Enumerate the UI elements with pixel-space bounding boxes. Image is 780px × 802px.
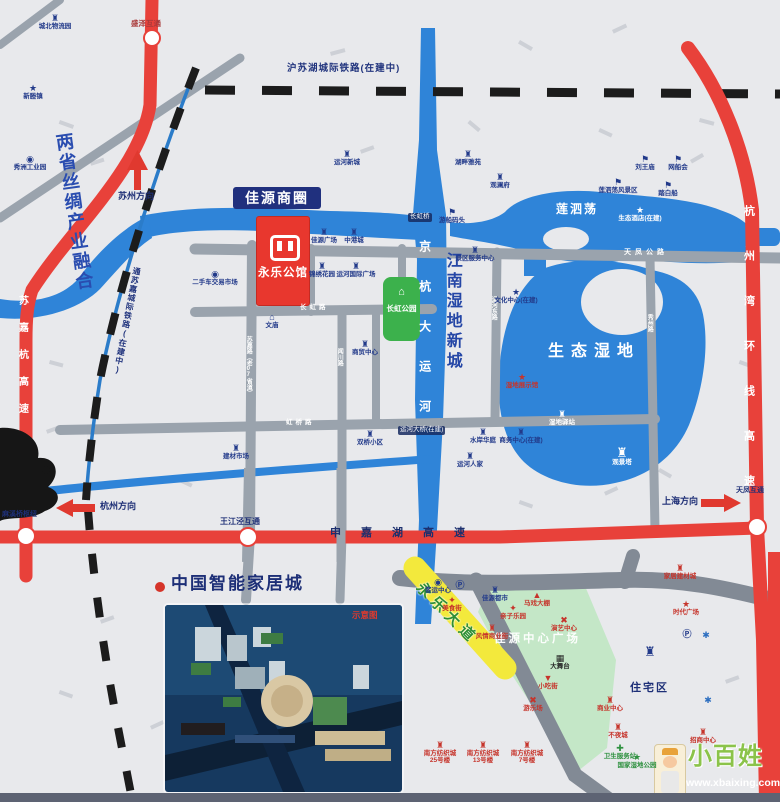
junction-hub: 麻溪桥枢纽 [2,511,37,518]
tower-icon: ♜ [612,645,688,658]
knot-icon: ✱ [670,696,746,705]
poi-buildings: ♜观澜府 [462,173,538,189]
buildings-icon: ♜ [17,14,93,23]
direction-shanghai: 上海方向 [662,497,698,506]
boat-icon: ⚑ [640,155,716,164]
poi-games: ✖演艺中心 [526,616,602,632]
poi-star: ★新塍镇 [0,84,71,100]
plus-icon: ✚ [582,744,658,753]
poi-buildings: ♜商贸中心 [327,340,403,356]
poi-label: 游乐场 [495,705,571,712]
poi-buildings: ♜商业中心 [572,696,648,712]
watermark-brand: 小百姓 [688,744,763,769]
poi-label: 生态酒店(在建) [602,215,678,222]
poi-label: 商务中心(在建) [483,437,559,444]
ink-dot [51,495,57,501]
title-bullet-icon [155,582,165,592]
star-icon: ★ [478,288,554,297]
hangzhou-bay-hwy-label: 杭州湾环线高速 [742,205,754,520]
food-icon: ✦ [475,604,551,613]
inset-tag: 示意图 [352,611,378,620]
tower-icon: ♜ [584,446,660,459]
direction-suzhou: 苏州方向 [118,192,154,201]
poi-buildings: ♜家居建材城 [642,564,718,580]
poi-label: 演艺中心 [526,625,602,632]
poi-label: 大舞台 [522,663,598,670]
poi-label: 秀洲工业园 [0,164,68,171]
star-icon: ★ [602,206,678,215]
poi-buildings: ♜风情商业街 [454,624,530,640]
ink-blot-decoration [0,428,58,521]
buildings-icon: ♜ [437,246,513,255]
poi-label: 不夜城 [580,732,656,739]
poi-buildings: ♜不夜城 [580,723,656,739]
buildings-icon: ♜ [316,228,392,237]
buildings-icon: ♜ [430,150,506,159]
park-block: ⌂ 长虹公园 [383,277,420,341]
poi-star: ★国家湿地公园 [599,753,675,769]
flower-icon: ◉ [177,270,253,279]
junction-wangjiangjing: 王江泾互通 [220,518,260,526]
buildings-icon: ♜ [524,410,600,419]
map-canvas: 沪苏湖城际铁路(在建中) 通苏嘉城际铁路(在建中) 盛泽互通 苏州方向 两省丝绸… [0,0,780,802]
buildings-icon: ♜ [489,741,565,750]
poi-label: 湿地驿站 [524,419,600,426]
poi-buildings: ♜商务中心(在建) [483,428,559,444]
xiuzhou-rd-label: 秀州路 [646,314,652,332]
poi-label: 商业中心 [572,705,648,712]
residential-label: 住宅区 [630,683,669,695]
buildings-icon: ♜ [483,428,559,437]
buildings-icon: ♜ [665,728,741,737]
aerial-inset-image [165,605,402,792]
poi-star: ★湿地展示馆 [484,373,560,389]
cone-icon: ▼ [510,674,586,683]
poi-buildings: ♜景区服务中心 [437,246,513,262]
poi-label: 二手车交易市场 [177,279,253,286]
poi-label: 商贸中心 [327,349,403,356]
poi-label: 运河国际广场 [318,271,394,278]
wetland-city-label: 江南湿地新城 [443,252,460,372]
poi-label: 双桥小区 [332,439,408,446]
poi-knot: ✱ [668,631,744,640]
poi-star: ★文化中心(在建) [478,288,554,304]
buildings-icon: ♜ [198,444,274,453]
poi-star: ★时代广场 [648,600,724,616]
boat-icon: ⚑ [414,208,490,217]
poi-label: 文化中心(在建) [478,297,554,304]
poi-label: 观澜府 [462,182,538,189]
hongqiao-rd-label: 虹桥路 [286,420,315,427]
poi-label: 南方纺织城 7号楼 [489,750,565,764]
poi-label: 建材市场 [198,453,274,460]
direction-hangzhou: 杭州方向 [100,502,136,511]
poi-buildings: ♜运河人家 [432,452,508,468]
poi-buildings: ♜运河国际广场 [318,262,394,278]
flower-icon: ◉ [0,155,68,164]
poi-label: 国家湿地公园 [599,762,675,769]
poi-tower: ♜观景塔 [584,446,660,466]
poi-cone: ▼小吃街 [510,674,586,690]
boat-icon: ⚑ [630,181,706,190]
poi-stage: ▦大舞台 [522,654,598,670]
poi-label: 城北物流园 [17,23,93,30]
poi-label: 时代广场 [648,609,724,616]
star-icon: ★ [599,753,675,762]
tent-icon: ▲ [499,591,575,600]
poi-label: 运河新城 [309,159,385,166]
buildings-icon: ♜ [462,173,538,182]
poi-label: 风情商业街 [454,633,530,640]
buildings-icon: ♜ [454,624,530,633]
poi-buildings: ♜湿地驿站 [524,410,600,426]
poi-label: 湖畔雅苑 [430,159,506,166]
buildings-icon: ♜ [642,564,718,573]
poi-knot: ✱ [670,696,746,705]
poi-boat: ⚑游船码头 [414,208,490,224]
buildings-icon: ♜ [572,696,648,705]
sujiahang-hwy-label: 苏嘉杭高速 [16,295,27,430]
poi-buildings: ♜双桥小区 [332,430,408,446]
buildings-icon: ♜ [432,452,508,461]
temple-icon: ⌂ [234,313,310,322]
poi-label: 家居建材城 [642,573,718,580]
poi-star: ★生态酒店(在建) [602,206,678,222]
eco-wetland-label: 生态湿地 [548,344,640,361]
poi-games: ✖游乐场 [495,696,571,712]
buildings-icon: ♜ [318,262,394,271]
bottom-edge-strip [0,793,780,802]
business-circle-badge: 佳源商圈 [233,187,321,209]
poi-label: 景区服务中心 [437,255,513,262]
watermark-url: www.xbaixing.com [686,778,780,789]
poi-buildings: ♜南方纺织城 7号楼 [489,741,565,764]
lake-label: 莲泗荡 [556,203,598,216]
poi-buildings: ♜运河新城 [309,150,385,166]
poi-tower: ♜ [612,645,688,658]
poi-label: 游船码头 [414,217,490,224]
poi-label: 踏白船 [630,190,706,197]
ink-dot [42,466,50,474]
railway-label-hsh: 沪苏湖城际铁路(在建中) [287,64,400,74]
poi-buildings: ♜招商中心 [665,728,741,744]
buildings-icon: ♜ [327,340,403,349]
canal-label: 京杭大运河 [418,240,431,440]
poi-flower: ◉秀洲工业园 [0,155,68,171]
poi-buildings: ♜湖畔雅苑 [430,150,506,166]
poi-boat: ⚑网船会 [640,155,716,171]
poi-label: 中港城 [316,237,392,244]
star-icon: ★ [0,84,71,93]
star-icon: ★ [648,600,724,609]
junction-shengze: 盛泽互通 [131,20,161,28]
poi-label: 网船会 [640,164,716,171]
star-icon: ★ [484,373,560,382]
buildings-icon: ♜ [332,430,408,439]
poi-flower: ◉二手车交易市场 [177,270,253,286]
games-icon: ✖ [526,616,602,625]
junction-tianfeng: 天凤互通 [736,487,764,494]
poi-buildings: ♜建材市场 [198,444,274,460]
shenjiahu-hwy-label: 申嘉湖高速 [330,528,485,540]
poi-label: 招商中心 [665,737,741,744]
poi-buildings: ♜城北物流园 [17,14,93,30]
stage-icon: ▦ [522,654,598,663]
tianfeng-rd-label: 天凤公路 [624,249,668,256]
poi-label: 文庙 [234,322,310,329]
smart-home-city-title: 中国智能家居城 [171,575,304,593]
buildings-icon: ♜ [309,150,385,159]
poi-label: 湿地展示馆 [484,382,560,389]
knot-icon: ✱ [668,631,744,640]
pavilion-icon: ⌂ [383,287,420,299]
watermark: 小百姓 www.xbaixing.com [652,742,780,800]
poi-label: 新塍镇 [0,93,71,100]
poi-buildings: ♜中港城 [316,228,392,244]
buildings-icon: ♜ [580,723,656,732]
poi-temple: ⌂文庙 [234,313,310,329]
poi-label: 小吃街 [510,683,586,690]
lake-island [543,227,589,251]
park-name: 长虹公园 [383,305,420,313]
poi-label: 观景塔 [584,459,660,466]
sujia-rd-label: 苏嘉路（老07省道） [245,336,251,396]
changhong-rd-label: 长虹路 [300,305,329,312]
poi-label: 运河人家 [432,461,508,468]
poi-boat: ⚑踏白船 [630,181,706,197]
games-icon: ✖ [495,696,571,705]
road-overpasses [247,468,341,562]
